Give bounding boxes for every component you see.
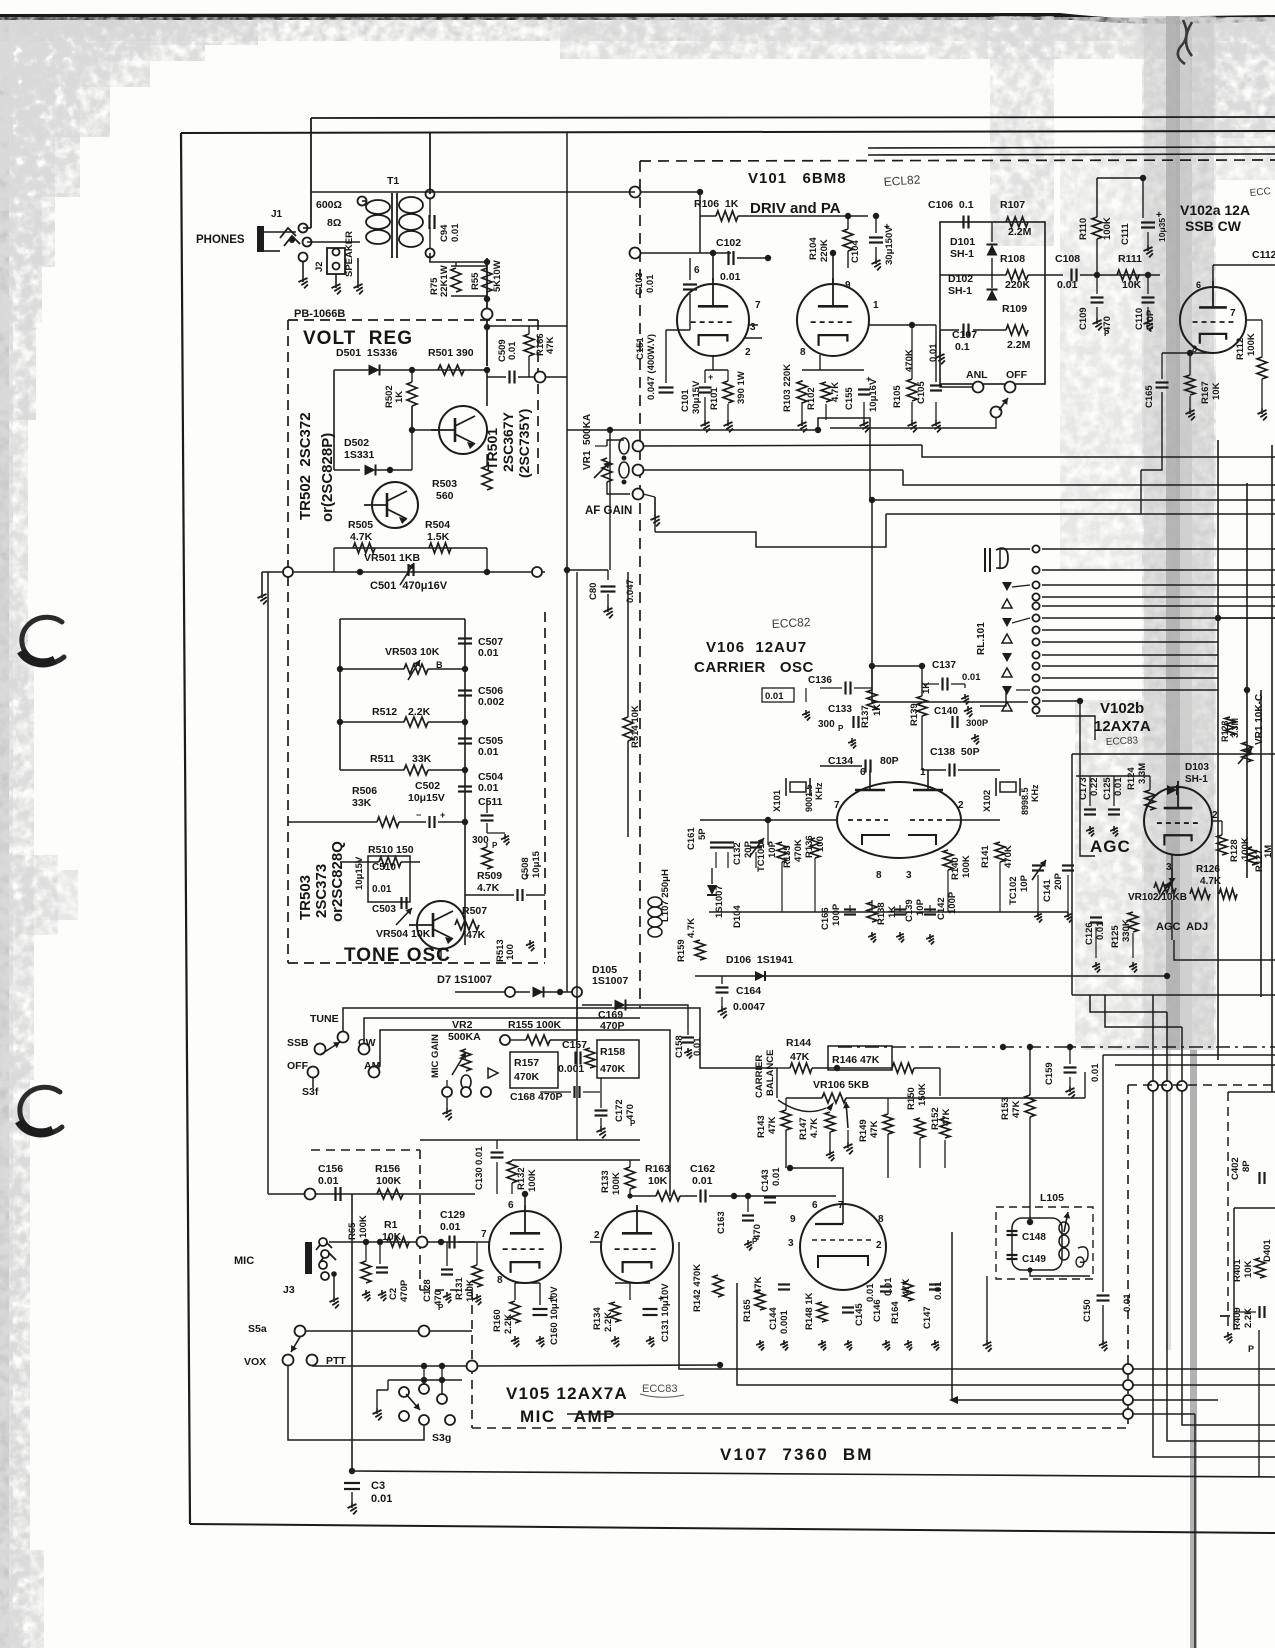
svg-text:P: P (1104, 329, 1110, 338)
svg-text:1S1007: 1S1007 (592, 975, 628, 987)
svg-text:300P: 300P (966, 718, 989, 729)
svg-text:C131 10μ10V: C131 10μ10V (660, 1283, 671, 1342)
svg-text:C148: C148 (1022, 1232, 1046, 1243)
svg-text:470K: 470K (904, 349, 915, 372)
svg-text:1: 1 (920, 767, 926, 778)
svg-text:VR503 10K: VR503 10K (385, 646, 440, 658)
svg-text:C173: C173 (1078, 777, 1089, 800)
svg-text:R167: R167 (1200, 381, 1211, 404)
svg-text:R55: R55 (470, 272, 481, 290)
svg-text:+: + (524, 870, 529, 880)
svg-text:R510 150: R510 150 (368, 844, 414, 856)
svg-text:VR1 500KA: VR1 500KA (582, 414, 593, 470)
svg-text:33K: 33K (352, 797, 372, 809)
svg-text:AF GAIN: AF GAIN (585, 505, 632, 517)
svg-text:0.01: 0.01 (771, 1167, 782, 1186)
svg-text:+: + (708, 372, 713, 382)
svg-text:R401: R401 (1232, 1259, 1243, 1282)
svg-text:C511: C511 (478, 796, 503, 808)
svg-text:0.01: 0.01 (928, 343, 939, 362)
svg-text:0.01: 0.01 (478, 746, 499, 758)
svg-text:R159: R159 (676, 939, 687, 962)
svg-text:C163: C163 (716, 1211, 727, 1234)
svg-text:SH-1: SH-1 (950, 248, 974, 260)
svg-text:R131: R131 (454, 1277, 465, 1300)
svg-text:R409: R409 (1232, 1307, 1243, 1330)
svg-text:6: 6 (860, 767, 866, 778)
svg-text:RL.101: RL.101 (976, 622, 987, 655)
svg-text:4.7K: 4.7K (809, 1118, 820, 1138)
svg-text:+: + (440, 810, 445, 820)
svg-text:T1: T1 (387, 175, 399, 187)
svg-text:100: 100 (505, 944, 516, 960)
svg-text:S5a: S5a (248, 1323, 267, 1335)
svg-text:X101: X101 (772, 789, 783, 812)
svg-text:−: − (416, 810, 421, 820)
svg-text:2: 2 (594, 1230, 600, 1241)
svg-text:or2SC828Q: or2SC828Q (329, 841, 346, 922)
svg-text:8: 8 (876, 870, 882, 881)
svg-text:22K1W: 22K1W (439, 265, 450, 297)
svg-text:C2: C2 (388, 1288, 399, 1300)
svg-text:OFF: OFF (1006, 369, 1028, 381)
svg-text:0.01: 0.01 (440, 1221, 461, 1233)
svg-text:R112: R112 (1235, 338, 1246, 360)
svg-text:R164: R164 (890, 1301, 901, 1324)
svg-text:C136: C136 (808, 675, 832, 686)
svg-text:10P: 10P (1019, 874, 1030, 892)
svg-text:2.2K: 2.2K (603, 1312, 614, 1332)
svg-text:R163: R163 (645, 1163, 670, 1175)
svg-text:V102b: V102b (1100, 700, 1144, 717)
svg-text:P: P (438, 1303, 444, 1312)
svg-text:3: 3 (1166, 862, 1172, 873)
svg-text:47K: 47K (1011, 1100, 1022, 1118)
svg-text:V105 12AX7A: V105 12AX7A (506, 1384, 628, 1403)
svg-text:C149: C149 (1022, 1254, 1046, 1265)
svg-text:J3: J3 (283, 1284, 295, 1296)
svg-text:C160 10μ10V: C160 10μ10V (549, 1286, 560, 1345)
svg-text:390 1W: 390 1W (736, 371, 747, 404)
svg-text:SH-1: SH-1 (1185, 774, 1208, 785)
svg-text:12AX7A: 12AX7A (1094, 718, 1151, 735)
svg-text:1S331: 1S331 (344, 449, 375, 461)
svg-text:0.01: 0.01 (1090, 1063, 1101, 1082)
svg-text:R512: R512 (372, 706, 397, 718)
svg-text:R146 47K: R146 47K (832, 1054, 880, 1066)
svg-text:C107: C107 (952, 329, 977, 341)
svg-text:MIC AMP: MIC AMP (520, 1407, 616, 1426)
svg-text:V102a 12A: V102a 12A (1180, 202, 1250, 218)
svg-text:D104: D104 (732, 905, 743, 928)
svg-text:VOX: VOX (244, 1356, 266, 1368)
svg-text:C161: C161 (686, 827, 697, 850)
svg-text:SH-1: SH-1 (948, 285, 972, 297)
svg-text:R1: R1 (384, 1219, 398, 1231)
svg-text:220K: 220K (819, 239, 830, 262)
svg-text:7: 7 (834, 800, 840, 811)
svg-text:0.001: 0.001 (558, 1063, 584, 1075)
svg-text:SSB CW: SSB CW (1185, 218, 1242, 234)
svg-text:R160: R160 (492, 1309, 503, 1332)
svg-text:C402: C402 (1230, 1157, 1241, 1180)
svg-text:0.01: 0.01 (450, 223, 461, 242)
svg-text:10K: 10K (648, 1175, 668, 1187)
svg-text:10μ15: 10μ15 (531, 850, 542, 878)
svg-text:R139: R139 (909, 703, 920, 726)
svg-text:470P: 470P (399, 1279, 410, 1302)
svg-text:C164: C164 (736, 985, 761, 997)
svg-text:3.3M: 3.3M (1137, 763, 1148, 784)
svg-text:0.01: 0.01 (692, 1037, 703, 1056)
svg-text:10μ16V: 10μ16V (868, 378, 879, 412)
svg-text:AGC: AGC (1090, 837, 1131, 856)
svg-text:C140: C140 (934, 706, 958, 717)
svg-text:ECC83: ECC83 (1106, 735, 1139, 748)
svg-text:C145: C145 (854, 1303, 865, 1326)
svg-text:2.2K: 2.2K (408, 706, 431, 718)
svg-text:0.002: 0.002 (478, 696, 504, 708)
svg-text:C141: C141 (1042, 879, 1053, 902)
svg-text:VR106 5KB: VR106 5KB (813, 1079, 869, 1091)
svg-text:300: 300 (818, 719, 835, 730)
svg-text:4.7K: 4.7K (1200, 876, 1222, 887)
svg-text:10K: 10K (1211, 382, 1222, 400)
svg-text:TUNE: TUNE (310, 1013, 339, 1025)
svg-text:8Ω: 8Ω (327, 217, 341, 229)
svg-text:D502: D502 (344, 437, 369, 449)
svg-text:VR2: VR2 (452, 1019, 473, 1031)
svg-text:C133: C133 (828, 704, 852, 715)
svg-text:R149: R149 (858, 1119, 869, 1142)
svg-text:100P: 100P (831, 903, 842, 926)
svg-text:R105: R105 (892, 385, 903, 408)
svg-text:1S1007: 1S1007 (714, 885, 725, 918)
svg-text:R153: R153 (1000, 1097, 1011, 1120)
svg-text:80P: 80P (880, 755, 899, 767)
svg-text:4.7K: 4.7K (477, 882, 500, 894)
svg-text:C157: C157 (562, 1039, 587, 1051)
svg-text:2SC373: 2SC373 (313, 864, 330, 918)
svg-text:J2: J2 (314, 261, 325, 272)
svg-text:(2SC735Y): (2SC735Y) (516, 409, 532, 478)
svg-text:R144: R144 (786, 1037, 811, 1049)
svg-text:V101 6BM8: V101 6BM8 (748, 170, 847, 187)
svg-text:470K: 470K (1003, 845, 1014, 868)
svg-text:100K: 100K (527, 1169, 538, 1192)
svg-text:C128: C128 (422, 1279, 433, 1302)
svg-text:C109: C109 (1078, 307, 1089, 330)
svg-text:PTT: PTT (326, 1355, 346, 1367)
svg-text:10μ15V: 10μ15V (354, 856, 365, 890)
svg-text:10μ15V: 10μ15V (408, 792, 445, 804)
svg-text:R109: R109 (1002, 303, 1027, 315)
svg-text:C80: C80 (588, 583, 599, 600)
svg-text:C172: C172 (614, 1099, 625, 1122)
svg-text:47K: 47K (545, 336, 556, 354)
svg-text:0.01: 0.01 (474, 1146, 485, 1165)
svg-text:S3f: S3f (302, 1086, 319, 1098)
svg-text:C156: C156 (318, 1163, 343, 1175)
svg-text:0.047: 0.047 (625, 579, 636, 603)
svg-text:C150: C150 (1082, 1299, 1093, 1322)
svg-text:R141: R141 (980, 845, 991, 868)
svg-text:470: 470 (625, 1104, 636, 1120)
svg-text:V107 7360 BM: V107 7360 BM (720, 1445, 874, 1464)
svg-text:L105: L105 (1040, 1192, 1064, 1204)
svg-text:TONE OSC: TONE OSC (344, 945, 451, 966)
svg-text:or(2SC828P): or(2SC828P) (319, 433, 336, 522)
svg-text:1K: 1K (394, 391, 405, 403)
svg-text:C101: C101 (680, 389, 691, 412)
svg-text:C94: C94 (439, 224, 450, 242)
svg-text:R155 100K: R155 100K (508, 1019, 562, 1031)
svg-text:6: 6 (1196, 280, 1201, 290)
svg-text:R107: R107 (1000, 199, 1025, 211)
svg-text:MIC GAIN: MIC GAIN (430, 1034, 441, 1078)
svg-text:470K: 470K (793, 839, 804, 862)
svg-text:47K: 47K (767, 1116, 778, 1134)
svg-text:8: 8 (497, 1275, 503, 1286)
svg-text:C102: C102 (716, 237, 741, 249)
svg-text:R143: R143 (756, 1115, 767, 1138)
svg-text:R125: R125 (1110, 925, 1121, 948)
svg-text:C126: C126 (1084, 922, 1095, 945)
svg-text:470K: 470K (514, 1071, 540, 1083)
svg-text:PB-1066B: PB-1066B (294, 308, 345, 320)
svg-text:R128: R128 (1229, 839, 1240, 862)
svg-text:0.01: 0.01 (371, 1493, 392, 1505)
svg-text:V106 12AU7: V106 12AU7 (706, 639, 807, 656)
svg-text:R509: R509 (477, 870, 502, 882)
svg-text:OFF: OFF (287, 1060, 309, 1072)
svg-text:D101: D101 (950, 236, 975, 248)
svg-text:2.2M: 2.2M (1007, 339, 1031, 351)
svg-text:C155: C155 (844, 387, 855, 410)
svg-text:4.7K: 4.7K (350, 531, 373, 543)
svg-text:C108: C108 (1055, 253, 1080, 265)
svg-text:4.7K: 4.7K (830, 382, 841, 402)
svg-text:0.01: 0.01 (962, 672, 981, 683)
svg-text:R506: R506 (352, 785, 377, 797)
svg-text:7: 7 (481, 1229, 487, 1240)
svg-text:2: 2 (1212, 810, 1218, 821)
svg-text:8P: 8P (1241, 1160, 1252, 1172)
svg-text:470K: 470K (600, 1063, 626, 1075)
svg-text:C112: C112 (1252, 249, 1275, 261)
svg-text:C503: C503 (372, 904, 396, 915)
svg-text:7: 7 (755, 300, 761, 311)
svg-text:100K: 100K (1246, 333, 1257, 356)
svg-text:D102: D102 (948, 273, 973, 285)
svg-text:10K: 10K (1122, 279, 1142, 291)
svg-text:BALANCE: BALANCE (765, 1050, 776, 1096)
svg-text:4.7K: 4.7K (686, 918, 697, 938)
svg-text:8: 8 (800, 347, 806, 358)
svg-text:C103: C103 (634, 272, 645, 295)
svg-text:C125: C125 (1102, 777, 1113, 800)
svg-text:5P: 5P (697, 828, 708, 840)
svg-text:D103: D103 (1185, 762, 1209, 773)
svg-text:0.01: 0.01 (720, 271, 741, 283)
svg-text:R157: R157 (514, 1057, 539, 1069)
svg-text:0.01: 0.01 (372, 884, 392, 895)
svg-text:R142 470K: R142 470K (692, 1264, 703, 1312)
svg-text:0.0047: 0.0047 (733, 1001, 765, 1013)
svg-text:X102: X102 (982, 790, 993, 812)
svg-text:R511: R511 (370, 753, 395, 765)
svg-text:C502: C502 (415, 780, 440, 792)
svg-text:0.01: 0.01 (318, 1175, 339, 1187)
svg-text:2: 2 (958, 800, 964, 811)
svg-text:C144: C144 (768, 1307, 779, 1330)
svg-text:C510: C510 (372, 862, 396, 873)
svg-text:C158: C158 (674, 1035, 685, 1058)
svg-text:100K: 100K (358, 1215, 369, 1238)
svg-text:2: 2 (745, 347, 751, 358)
svg-text:R156: R156 (375, 1163, 400, 1175)
svg-text:C147: C147 (922, 1306, 933, 1329)
svg-text:S3g: S3g (432, 1432, 451, 1444)
svg-text:C165: C165 (1144, 385, 1155, 408)
svg-text:0.01: 0.01 (478, 782, 499, 794)
svg-text:3: 3 (906, 870, 912, 881)
svg-text:VR1 10K-C: VR1 10K-C (1254, 694, 1265, 745)
svg-text:0.01: 0.01 (645, 274, 656, 293)
svg-text:SSB: SSB (287, 1037, 309, 1049)
svg-text:0.047 (400W.V): 0.047 (400W.V) (646, 334, 657, 400)
svg-text:KHz: KHz (1030, 784, 1040, 802)
svg-text:C139: C139 (904, 899, 915, 922)
svg-text:C143: C143 (760, 1169, 771, 1192)
svg-text:3: 3 (788, 1238, 794, 1249)
svg-text:R507: R507 (462, 905, 487, 917)
svg-text:0.01: 0.01 (1095, 921, 1106, 940)
svg-text:R137: R137 (860, 705, 871, 728)
svg-text:R108: R108 (1000, 253, 1025, 265)
svg-text:330K: 330K (1121, 919, 1132, 942)
svg-text:C129: C129 (440, 1209, 465, 1221)
svg-text:100P: 100P (947, 891, 958, 914)
svg-text:100K: 100K (1102, 217, 1113, 240)
svg-text:R158: R158 (600, 1046, 625, 1058)
svg-text:0.1: 0.1 (955, 341, 970, 353)
svg-text:C168 470P: C168 470P (510, 1091, 563, 1103)
svg-text:R503: R503 (432, 478, 457, 490)
svg-text:P: P (1248, 1344, 1254, 1354)
svg-text:P: P (630, 1119, 636, 1128)
svg-text:C142: C142 (936, 897, 947, 920)
svg-text:C111: C111 (1120, 223, 1131, 245)
svg-text:R101: R101 (709, 387, 720, 410)
svg-text:C138 50P: C138 50P (930, 746, 980, 758)
svg-text:C104: C104 (850, 240, 861, 263)
svg-text:ANL: ANL (966, 369, 988, 381)
svg-text:7: 7 (1230, 308, 1236, 319)
svg-text:150K: 150K (917, 1083, 928, 1106)
svg-text:0.01: 0.01 (478, 647, 499, 659)
svg-text:VR504 10K: VR504 10K (376, 928, 431, 940)
svg-text:KHz: KHz (814, 782, 824, 800)
svg-text:9001.5: 9001.5 (804, 784, 814, 812)
svg-text:3: 3 (750, 322, 756, 333)
svg-text:C162: C162 (690, 1163, 715, 1175)
svg-text:0.01: 0.01 (507, 341, 518, 360)
svg-text:2: 2 (876, 1240, 882, 1251)
svg-text:ECL82: ECL82 (883, 172, 921, 189)
svg-text:VOLT REG: VOLT REG (303, 328, 413, 349)
svg-text:0.001: 0.001 (779, 1310, 790, 1334)
svg-text:R111: R111 (1118, 253, 1142, 265)
svg-text:0.01: 0.01 (865, 1283, 876, 1302)
svg-text:R147: R147 (798, 1117, 809, 1140)
svg-text:30μ15V: 30μ15V (691, 380, 702, 414)
svg-text:P: P (838, 724, 844, 733)
svg-text:VR501 1KB: VR501 1KB (364, 552, 420, 564)
svg-text:C132: C132 (732, 842, 743, 865)
svg-text:2SC367Y: 2SC367Y (500, 411, 516, 472)
svg-text:8: 8 (878, 1214, 884, 1225)
svg-text:TR502 2SC372: TR502 2SC372 (297, 412, 314, 520)
svg-text:C105: C105 (916, 381, 927, 404)
svg-text:D106 1S1941: D106 1S1941 (726, 954, 793, 966)
svg-text:C134: C134 (828, 755, 853, 767)
svg-text:0.01: 0.01 (765, 691, 784, 702)
svg-text:TC102: TC102 (1008, 876, 1019, 905)
svg-text:C3: C3 (371, 1480, 385, 1492)
svg-text:AGC ADJ: AGC ADJ (1156, 921, 1208, 933)
svg-text:C146: C146 (872, 1299, 883, 1322)
svg-text:R124: R124 (1126, 767, 1137, 790)
svg-text:VR102 10KB: VR102 10KB (1128, 892, 1187, 903)
svg-text:9: 9 (790, 1214, 796, 1225)
svg-text:R104: R104 (808, 237, 819, 260)
svg-text:0.01: 0.01 (1057, 279, 1078, 291)
svg-text:47K: 47K (869, 1120, 880, 1138)
svg-text:2.2K: 2.2K (1243, 1308, 1254, 1328)
svg-text:R165: R165 (742, 1299, 753, 1322)
svg-text:R103 220K: R103 220K (782, 364, 793, 412)
svg-text:CARRIER OSC: CARRIER OSC (694, 659, 814, 676)
svg-text:100K: 100K (961, 855, 972, 878)
svg-text:R102: R102 (806, 387, 817, 410)
svg-text:10P: 10P (915, 898, 926, 916)
svg-text:500KA: 500KA (448, 1031, 481, 1043)
svg-text:6: 6 (694, 265, 700, 276)
svg-text:R132: R132 (516, 1167, 527, 1190)
svg-text:100K: 100K (376, 1175, 402, 1187)
svg-text:R501 390: R501 390 (428, 347, 474, 359)
svg-text:R133: R133 (600, 1170, 611, 1193)
svg-text:TR503: TR503 (297, 875, 314, 920)
svg-text:P: P (752, 1237, 758, 1246)
svg-text:C159: C159 (1044, 1062, 1055, 1085)
svg-text:SPEAKER: SPEAKER (344, 231, 355, 277)
svg-text:20P: 20P (1053, 872, 1064, 890)
svg-text:5K10W: 5K10W (492, 260, 503, 292)
svg-text:9: 9 (845, 280, 851, 291)
svg-text:6: 6 (812, 1200, 818, 1211)
svg-text:C137: C137 (932, 660, 956, 671)
svg-text:C151: C151 (635, 337, 646, 360)
svg-text:PHONES: PHONES (196, 234, 245, 246)
svg-text:R148 1K: R148 1K (804, 1292, 815, 1330)
svg-text:10μ35: 10μ35 (1157, 218, 1167, 242)
svg-text:R150: R150 (906, 1087, 917, 1110)
svg-text:R134: R134 (592, 1307, 603, 1330)
svg-text:100K: 100K (611, 1172, 622, 1195)
svg-text:C106 0.1: C106 0.1 (928, 199, 974, 211)
